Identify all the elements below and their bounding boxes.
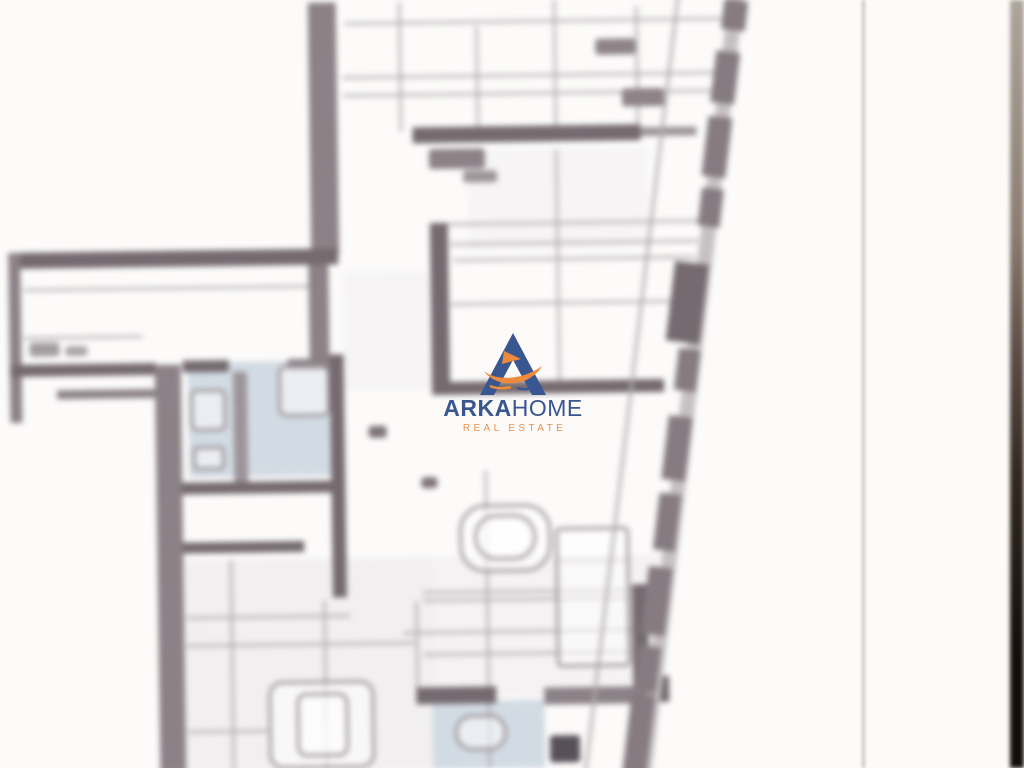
grid-line	[24, 285, 312, 292]
wall-segment	[308, 255, 329, 359]
marker-blob	[550, 735, 580, 762]
marker-blob	[29, 342, 59, 356]
window-chunk	[698, 187, 724, 227]
wall-segment	[308, 2, 340, 254]
wall-segment	[10, 363, 156, 377]
brand-tagline: REAL ESTATE	[428, 423, 598, 434]
page-edge-shadow	[1010, 0, 1024, 768]
wall-segment	[8, 248, 338, 269]
arkahome-watermark: ARKAHOME REAL ESTATE	[428, 333, 598, 434]
brand-name-regular: HOME	[512, 395, 583, 421]
fixture-outline	[190, 389, 227, 431]
marker-blob	[429, 148, 485, 169]
window-chunk	[701, 116, 732, 178]
window-chunk	[661, 415, 692, 481]
floor-plan-photo: ARKAHOME REAL ESTATE	[0, 0, 1024, 768]
marker-blob	[463, 170, 497, 182]
marker-blob	[622, 88, 664, 107]
grid-line	[453, 255, 695, 261]
marker-blob	[595, 38, 635, 55]
page-fold-line	[862, 0, 865, 768]
wall-segment	[182, 541, 304, 554]
wall-segment	[155, 365, 187, 768]
wall-segment	[330, 354, 347, 597]
brand-name-bold: ARKA	[443, 395, 511, 421]
wall-segment	[8, 253, 22, 423]
grid-line	[635, 6, 640, 128]
wall-segment	[233, 372, 249, 484]
wall-segment	[416, 686, 496, 704]
wall-segment	[640, 126, 696, 136]
fixture-outline	[193, 446, 225, 470]
window-chunk	[721, 0, 748, 31]
grid-line	[475, 26, 479, 130]
grid-line	[451, 300, 689, 306]
grid-line	[24, 335, 142, 340]
fixture-outline	[455, 714, 507, 751]
marker-blob	[65, 346, 87, 356]
brand-name: ARKAHOME	[428, 397, 598, 420]
fixture-outline	[278, 365, 331, 418]
marker-blob	[421, 477, 437, 488]
fixture-outline	[474, 514, 537, 561]
wall-segment	[181, 480, 345, 494]
page-wash	[343, 271, 431, 390]
wall-segment	[57, 389, 155, 399]
wall-segment	[183, 360, 229, 373]
marker-blob	[369, 426, 387, 438]
window-chunk	[710, 50, 740, 104]
wall-segment	[412, 124, 640, 143]
fixture-outline	[555, 526, 631, 667]
arkahome-logo-icon	[480, 333, 546, 395]
fixture-outline	[296, 692, 349, 757]
